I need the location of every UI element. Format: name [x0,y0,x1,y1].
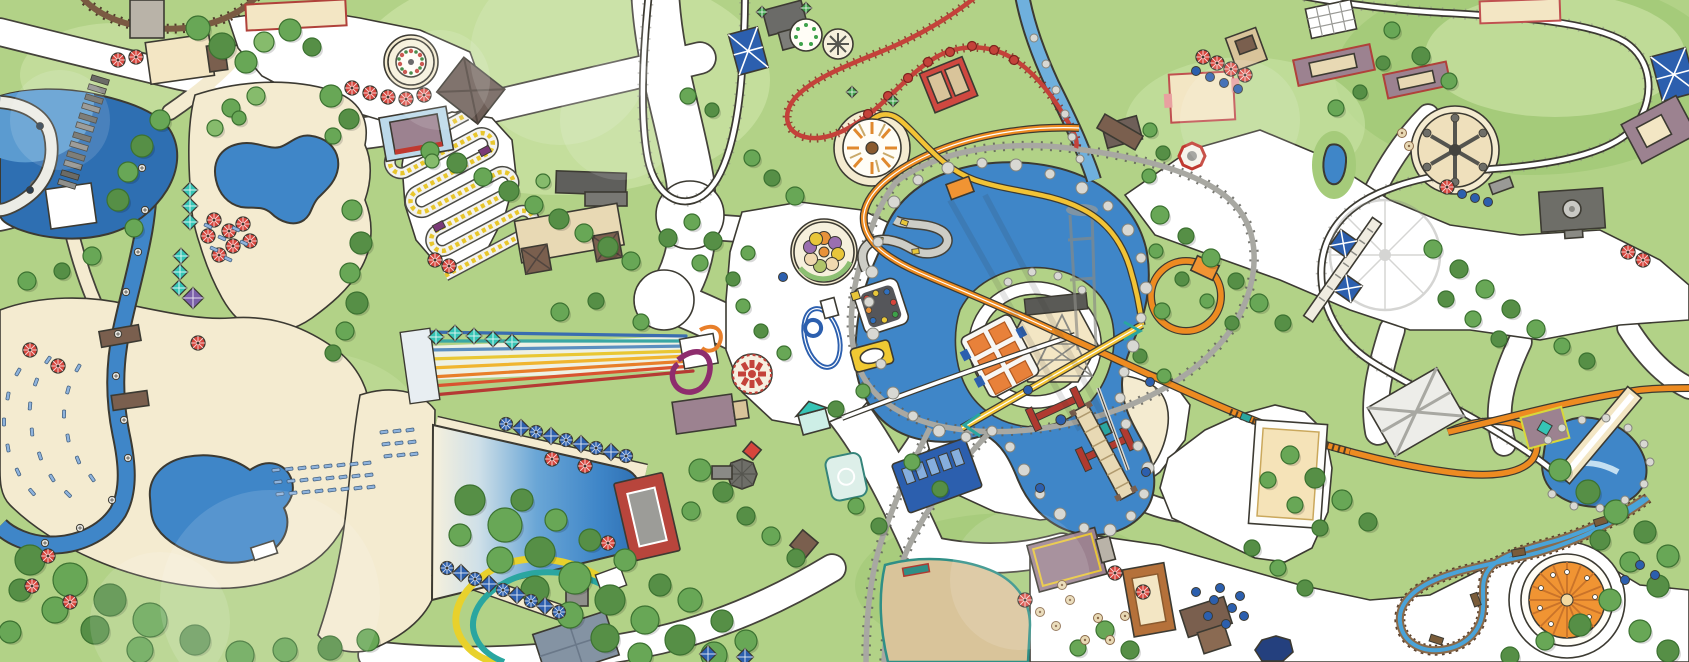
tree-icon [279,19,301,41]
rock-icon [1140,282,1152,294]
tree-icon [545,509,567,531]
tree-icon [235,51,257,73]
tree-icon [622,252,640,270]
rock-icon [1079,523,1089,533]
lounge-chair-icon [365,473,373,477]
rock-icon [876,359,886,369]
tree-icon [1228,273,1244,289]
rock-icon [1136,313,1146,323]
blue-table-icon [1651,571,1660,580]
glare-spot [10,70,110,170]
tree-icon [525,537,555,567]
tree-icon [1270,560,1286,576]
rock-icon [961,432,971,442]
umbrella-pole [351,87,354,90]
rock-icon [1068,133,1076,141]
umbrella-pole [31,585,34,588]
lounge-chair-icon [367,485,375,489]
tree-icon [1424,240,1442,258]
tree-icon [536,174,550,188]
tree-icon [83,247,101,265]
blue-table-icon [1636,561,1645,570]
rock-icon [864,297,874,307]
tree-icon [1527,320,1545,338]
umbrella-pole [207,235,210,238]
umbrella-pole [242,223,245,226]
tree-icon [692,255,708,271]
rock-icon [1042,60,1050,68]
tree-icon [15,545,45,575]
tree-icon [247,87,265,105]
tree-icon [665,625,695,655]
tree-icon [1491,331,1507,347]
tree-icon [1438,291,1454,307]
umbrella-pole [595,447,598,450]
lounge-chair-icon [311,465,319,469]
rock-icon [1076,182,1088,194]
blue-table-icon [1484,198,1493,207]
rock-icon [933,425,945,437]
lounge-chair-icon [272,468,280,472]
umbrella-pole [1446,186,1449,189]
rock-icon [1104,524,1116,536]
tree-icon [659,229,677,247]
stairs-platform [45,183,96,229]
lounge-chair-icon [326,476,334,480]
tree-icon [455,485,485,515]
tree-icon [447,153,467,173]
umbrella-pole [69,601,72,604]
rock-icon [1133,441,1143,451]
tree-icon [499,181,519,201]
tree-icon [1244,540,1260,556]
table-center [1408,145,1410,147]
tree-icon [1154,303,1170,319]
tree-icon [1501,647,1519,662]
lounge-chair-icon [380,430,388,434]
tree-icon [488,508,522,542]
glare-spot [950,510,1090,650]
park-map[interactable] [0,0,1689,662]
swing-ride [843,119,901,177]
rock-icon [1621,496,1629,504]
umbrella-pole [213,219,216,222]
rock-icon [1640,440,1648,448]
umbrella-pole [502,589,505,592]
tree-icon [1260,472,1276,488]
rock-icon [1121,419,1131,429]
rock-icon [1018,464,1030,476]
rock-icon [1028,268,1036,276]
tree-icon [1599,589,1621,611]
rock-icon [867,328,879,340]
tree-icon [598,237,618,257]
guest-building-e [1480,0,1561,23]
lounge-chair-icon [339,475,347,479]
tree-icon [449,524,471,546]
tree-icon [1569,614,1591,636]
rock-icon [1126,511,1136,521]
tree-icon [425,154,439,168]
tree-icon [551,303,569,321]
lounge-chair-icon [363,461,371,465]
blue-table-icon [1210,596,1219,605]
tree-icon [342,200,362,220]
umbrella-pole [47,555,50,558]
tree-icon [1175,272,1189,286]
rock-icon [1127,340,1139,352]
tree-icon [1502,300,1520,318]
tree-icon [871,518,887,534]
umbrella-pole [232,245,235,248]
lounge-chair-icon [274,480,282,484]
umbrella-pole [135,56,138,59]
tree-icon [1305,468,1325,488]
spinner-ride [732,354,772,394]
show-building-annex [585,192,627,206]
lounge-chair-icon [352,474,360,478]
rock-icon [1030,34,1038,42]
tree-icon [1151,206,1169,224]
glare-spot [390,30,490,130]
tree-icon [1657,640,1679,662]
tree-icon [325,345,341,361]
tree-icon [1536,632,1554,650]
tree-icon [764,170,780,186]
tree-icon [595,585,625,615]
lounge-chair-icon [341,487,349,491]
tree-icon [1156,146,1170,160]
tree-icon [848,498,864,514]
tree-icon [346,292,368,314]
tree-icon [1450,260,1468,278]
lounge-chair-icon [395,441,403,445]
umbrella-pole [558,611,561,614]
tree-icon [1549,459,1571,481]
rock-icon [1103,201,1113,211]
rock-icon [1136,253,1146,263]
map-canvas[interactable] [0,0,1689,662]
rock-icon [1045,169,1055,179]
tree-icon [303,38,321,56]
rock-icon [1061,110,1069,118]
tree-icon [1353,85,1367,99]
rock-icon [1054,272,1062,280]
tree-icon [726,272,740,286]
tree-icon [1412,47,1430,65]
tree-icon [254,32,274,52]
lounge-chair-icon [2,418,5,426]
tree-icon [487,547,513,573]
tree-icon [579,529,601,551]
tree-icon [511,489,533,511]
rock-icon [887,387,899,399]
lounge-chair-icon [324,464,332,468]
tree-icon [1121,641,1139,659]
tree-icon [754,324,768,338]
tree-icon [1225,316,1239,330]
rock-icon [1570,502,1578,510]
lounge-chair-icon [300,478,308,482]
tree-icon [1376,56,1390,70]
blue-table-icon [1621,576,1630,585]
tree-icon [737,507,755,525]
tree-icon [1441,73,1457,89]
tree-icon [628,643,652,662]
blue-table-icon [1236,592,1245,601]
umbrella-pole [565,439,568,442]
table-center [1097,617,1099,619]
umbrella-pole [1627,251,1630,254]
umbrella-pole [218,254,221,257]
tree-icon [591,624,619,652]
rock-icon [1640,480,1648,488]
lounge-chair-icon [328,488,336,492]
lounge-chair-icon [406,428,414,432]
umbrella-pole [474,578,477,581]
tree-icon [588,293,604,309]
tree-icon [777,346,791,360]
rock-icon [1602,414,1610,422]
tree-icon [232,111,246,125]
rock-icon [1544,436,1552,444]
umbrella-pole [584,465,587,468]
lounge-chair-icon [302,490,310,494]
glare-spot [1180,60,1300,180]
tree-icon [336,322,354,340]
lounge-chair-icon [62,410,65,418]
tree-icon [186,16,210,40]
blue-table-icon [1471,194,1480,203]
teacup-ride [794,222,854,282]
umbrella-pole [228,230,231,233]
tree-icon [762,527,780,545]
rock-icon [987,426,997,436]
tree-icon [1297,580,1313,596]
blue-table-icon [1204,612,1213,621]
tree-icon [1579,353,1595,369]
tree-icon [0,621,21,643]
blue-table-icon [1024,386,1033,395]
tree-icon [614,549,636,571]
tree-icon [741,246,755,260]
tree-icon [339,109,359,129]
tree-icon [1250,294,1268,312]
tree-icon [1465,311,1481,327]
rock-icon [942,162,954,174]
tree-icon [1149,244,1163,258]
umbrella-pole [535,431,538,434]
rock-icon [1076,155,1084,163]
tree-icon [53,563,87,597]
blue-table-icon [1228,604,1237,613]
tree-icon [1142,169,1156,183]
lounge-chair-icon [393,429,401,433]
tree-icon [118,162,138,182]
blue-table-icon [1240,612,1249,621]
rock-icon [866,266,878,278]
rock-icon [1004,278,1012,286]
tree-icon [474,168,492,186]
tree-icon [1332,490,1352,510]
umbrella-pole [1216,62,1219,65]
umbrella-pole [434,259,437,262]
tree-icon [684,214,700,230]
blue-table-icon [779,273,788,282]
umbrella-pole [29,349,32,352]
tree-icon [828,401,844,417]
tree-icon [575,224,593,242]
umbrella-pole [249,240,252,243]
rock-icon [1052,86,1060,94]
lounge-chair-icon [28,402,32,410]
rock-icon [908,411,918,421]
rock-icon [1119,367,1129,377]
tree-icon [549,209,569,229]
lounge-chair-icon [354,486,362,490]
tree-icon [1143,123,1157,137]
blue-table-icon [1216,584,1225,593]
umbrella-pole [57,365,60,368]
rock-icon [1054,508,1066,520]
glare-spot [560,60,680,180]
tree-icon [678,588,702,612]
umbrella-pole [625,455,628,458]
lounge-chair-icon [285,467,293,471]
blue-table-icon [1192,588,1201,597]
tree-icon [1281,446,1299,464]
tree-icon [904,454,920,470]
umbrella-pole [387,96,390,99]
tree-icon [125,219,143,237]
lounge-chair-icon [382,442,390,446]
guest-building-a [130,0,164,38]
tree-icon [1634,521,1656,543]
tree-icon [1657,545,1679,567]
tree-icon [1157,369,1171,383]
tree-icon [18,272,36,290]
tree-icon [711,610,733,632]
rock-icon [977,158,987,168]
table-center [1084,639,1086,641]
rock-icon [1078,286,1086,294]
blue-table-icon [1036,484,1045,493]
tree-icon [1576,480,1600,504]
tree-icon [705,103,719,117]
tree-icon [1476,280,1494,298]
lounge-chair-icon [410,452,418,456]
tree-icon [787,549,805,567]
tree-icon [209,33,235,59]
tree-icon [207,120,223,136]
rock-icon [1624,424,1632,432]
rock-icon [1139,489,1149,499]
tree-icon [680,88,696,104]
tree-icon [1554,338,1570,354]
rock-icon [873,237,883,247]
tree-icon [1312,520,1328,536]
kart-icon [27,187,34,194]
umbrella-pole [1142,591,1145,594]
tree-icon [131,135,153,157]
umbrella-pole [530,600,533,603]
umbrella-pole [551,458,554,461]
rock-icon [888,196,900,208]
splash-pad [824,452,868,503]
tree-icon [525,196,543,214]
rock-icon [1122,224,1134,236]
lounge-chair-icon [397,453,405,457]
tree-icon [54,263,70,279]
tree-icon [736,299,750,313]
tree-icon [1202,249,1220,267]
table-center [1109,639,1111,641]
tree-icon [320,85,342,107]
lounge-chair-icon [287,479,295,483]
table-center [1401,132,1403,134]
umbrella-pole [505,423,508,426]
tree-icon [649,574,671,596]
umbrella-pole [448,265,451,268]
tree-icon [631,606,659,634]
tree-icon [340,263,360,283]
tree-icon [150,110,170,130]
tree-icon [1178,228,1194,244]
tree-icon [107,189,129,211]
tree-icon [689,459,711,481]
tree-icon [1629,620,1651,642]
rock-icon [1115,393,1125,403]
umbrella-pole [1202,56,1205,59]
tree-icon [1384,22,1400,38]
rock-icon [1646,458,1654,466]
rock-icon [1558,424,1566,432]
tree-icon [325,128,341,144]
rock-icon [1005,442,1015,452]
rock-icon [1548,490,1556,498]
tree-icon [350,232,372,254]
tree-icon [1328,100,1344,116]
blue-table-icon [1142,468,1151,477]
umbrella-pole [1642,259,1645,262]
umbrella-pole [369,92,372,95]
lounge-chair-icon [313,477,321,481]
tree-icon [1590,530,1610,550]
tree-icon [786,187,804,205]
tree-icon [856,384,870,398]
lounge-chair-icon [384,454,392,458]
tree-icon [713,482,733,502]
tree-icon [1359,513,1377,531]
lounge-chair-icon [315,489,323,493]
lounge-chair-icon [298,466,306,470]
lounge-chair-icon [30,428,34,436]
blue-table-icon [1222,620,1231,629]
tree-icon [633,314,649,330]
umbrella-pole [1114,572,1117,575]
lounge-chair-icon [350,462,358,466]
tree-icon [682,502,700,520]
umbrella-pole [607,542,610,545]
tree-icon [1275,315,1291,331]
pond [1323,144,1346,184]
table-center [1124,615,1126,617]
ride-car-2 [912,249,919,255]
rock-icon [913,175,923,185]
rock-icon [1596,504,1604,512]
lounge-chair-icon [337,463,345,467]
umbrella-pole [446,567,449,570]
